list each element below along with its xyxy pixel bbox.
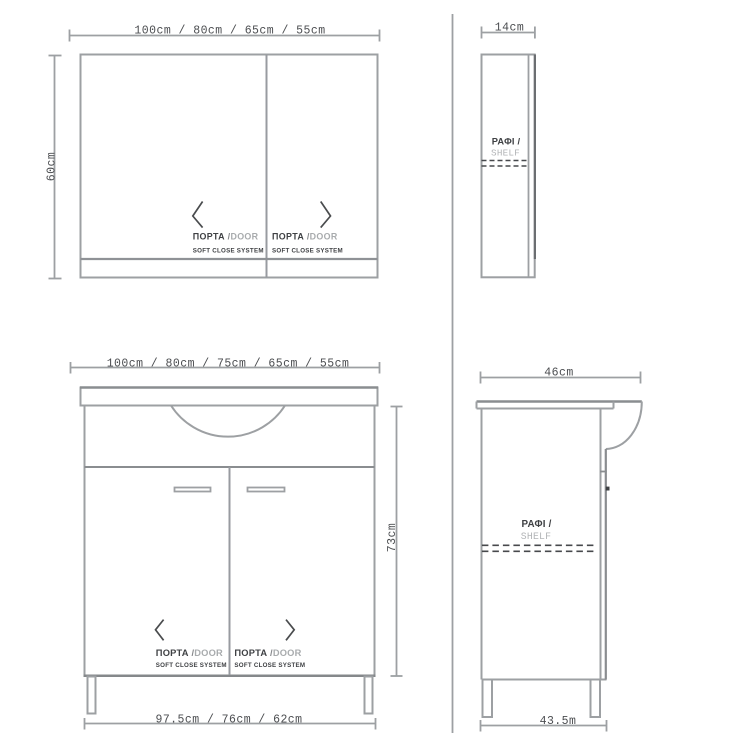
svg-text:SHELF: SHELF (491, 148, 520, 159)
svg-text:73cm: 73cm (386, 523, 399, 552)
svg-text:ΡΑΦΙ /: ΡΑΦΙ / (492, 137, 521, 147)
svg-text:SOFT CLOSE SYSTEM: SOFT CLOSE SYSTEM (234, 662, 305, 669)
svg-text:ΠΟΡΤΑ /DOOR: ΠΟΡΤΑ /DOOR (193, 232, 259, 242)
svg-text:43.5m: 43.5m (540, 715, 577, 728)
svg-text:SOFT CLOSE SYSTEM: SOFT CLOSE SYSTEM (156, 662, 227, 669)
svg-text:ΠΟΡΤΑ /DOOR: ΠΟΡΤΑ /DOOR (234, 648, 301, 658)
svg-text:14cm: 14cm (495, 22, 524, 35)
svg-text:100cm / 80cm / 65cm / 55cm: 100cm / 80cm / 65cm / 55cm (134, 25, 325, 38)
svg-text:ΠΟΡΤΑ /DOOR: ΠΟΡΤΑ /DOOR (156, 648, 223, 658)
svg-text:ΡΑΦΙ /: ΡΑΦΙ / (521, 519, 551, 530)
svg-text:46cm: 46cm (544, 367, 573, 380)
svg-text:100cm / 80cm / 75cm / 65cm / 5: 100cm / 80cm / 75cm / 65cm / 55cm (107, 357, 350, 370)
svg-text:ΠΟΡΤΑ /DOOR: ΠΟΡΤΑ /DOOR (272, 232, 338, 242)
svg-text:SOFT CLOSE SYSTEM: SOFT CLOSE SYSTEM (272, 247, 343, 254)
svg-text:97.5cm / 76cm / 62cm: 97.5cm / 76cm / 62cm (155, 714, 302, 727)
svg-text:SHELF: SHELF (521, 531, 551, 542)
svg-text:SOFT CLOSE SYSTEM: SOFT CLOSE SYSTEM (193, 247, 264, 254)
svg-text:60cm: 60cm (46, 152, 59, 181)
